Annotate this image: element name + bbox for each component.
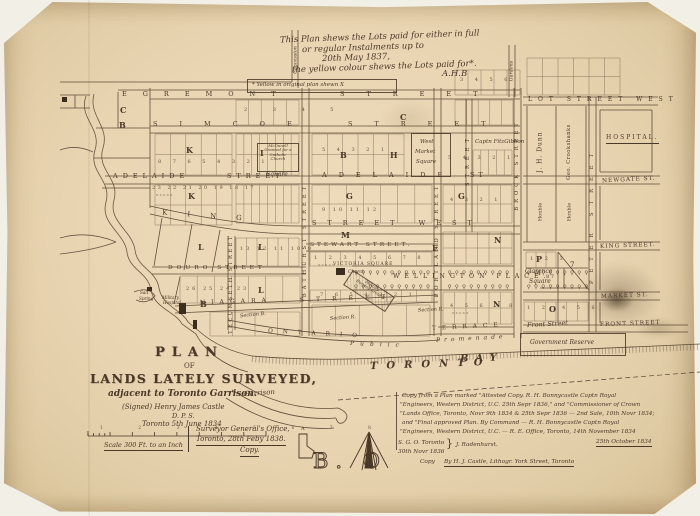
military-hospital-l2: Hospital (163, 301, 181, 306)
street-bathurst: BATHURST STREET (303, 183, 309, 297)
attestation-sgo1: S. G. O. Toronto (398, 440, 444, 446)
title-sub: adjacent to Toronto Garrison. (108, 390, 257, 400)
block-letter-c: C (120, 106, 126, 115)
street-egremont-street: STREET (340, 91, 500, 98)
block-letter-k: K (188, 192, 195, 201)
victoria-square-label: VICTORIA SQUARE (333, 263, 393, 268)
street-egremont: EGREMONT (122, 91, 292, 98)
street-simcoe-street: STREET (348, 121, 508, 128)
square-small-label: Square (266, 172, 288, 179)
sgo-divider (188, 426, 189, 452)
attestation-l3: "Lands Office, Toronto, Novr 9th 1834 & … (400, 411, 654, 417)
block-letter-i: I (260, 149, 264, 158)
scale-label: Scale 300 Ft. to an Inch (104, 442, 183, 451)
block-letter-m: M (341, 231, 350, 240)
block-letter-c: C (400, 113, 406, 122)
hospital-label: HOSPITAL. (606, 135, 659, 144)
street-douro: DOURO STREET (168, 265, 266, 271)
lot-numbers-row: 9 10 11 12 (322, 208, 379, 214)
lot-number-4: 4 (537, 271, 541, 278)
lot-numbers-8-7: 8 7 (546, 275, 554, 281)
lot-numbers-row: 3 4 5 6 (460, 78, 513, 84)
title-signed: (Signed) Henry James Castle (122, 404, 225, 412)
block-letter-f: F (432, 244, 438, 253)
victoria-square-church-building (336, 268, 345, 275)
street-king-center: STREET WEST (312, 220, 483, 227)
lot-x-marks: x x x x x (156, 193, 172, 197)
attestation-copy: Copy (420, 459, 435, 465)
block-letter-k: K (186, 146, 193, 155)
title-plan: PLAN (155, 346, 224, 360)
fitzgibbon-label: Captn FitzGibbon (475, 139, 524, 145)
attestation-sgo2: 30th Novr 1836 (398, 449, 445, 455)
lot-numbers-row: 8 7 6 5 4 3 2 1 (158, 160, 270, 166)
title-of: OF (184, 363, 195, 371)
owner-dunn: J. H. Dunn (538, 131, 545, 172)
block-letter-g: G (346, 192, 353, 201)
street-simcoe: SIMCOE (153, 121, 314, 128)
attestation-l5: "Engineers, Western District, U.C. — R. … (400, 429, 636, 435)
block-letter-b: B (200, 300, 207, 309)
attestation-divider (396, 392, 397, 450)
government-reserve-label: Government Reserve (530, 340, 594, 347)
top-note-footnote: * Yellow in original plan shewn X (252, 82, 344, 88)
lot-x-marks: x x x x x (318, 263, 334, 267)
attestation-brace: } (446, 438, 453, 450)
attestation-l2: "Engineers, Western District, U.C. 25th … (400, 402, 640, 408)
street-tecumseth: TECUMSETH STREET (229, 234, 235, 334)
lot-numbers-row: 5 4 3 2 1 (322, 148, 389, 154)
attestation-by: By H. J. Castle, Lithogr. York Street, T… (444, 459, 574, 467)
west-market-l1: West (420, 139, 434, 145)
street-portland: PORTLAND STREET (435, 183, 441, 298)
lot-numbers-row: 1 2 (527, 306, 550, 312)
survey-mark (299, 434, 314, 458)
lot-numbers-row: 23 22 21 20 19 18 17 (152, 186, 256, 192)
lot-numbers-row: 5 4 3 2 1 (448, 156, 515, 162)
street-brock: BROCK STREET (515, 119, 521, 210)
lot-numbers-row: 4 3 2 1 (450, 198, 503, 204)
owner-honble-1: Honble (538, 203, 544, 221)
salt-spring-l1: Salt (140, 291, 148, 296)
west-market-l2: Market (415, 149, 435, 155)
lot-numbers-row: 4 5 6 (562, 306, 600, 312)
lot-numbers-row: 4 5 6 7 8 (450, 304, 517, 310)
street-adelaide-west: ADELAIDE (113, 173, 189, 180)
street-lot-west: LOT STREET WEST (528, 97, 679, 104)
block-letter-l: L (258, 286, 264, 295)
lot-numbers-row: 1 2 3 4 5 6 7 8 (314, 256, 426, 262)
owner-crookshanks: Geo. Crookshanks (567, 124, 573, 180)
compass-letters-bo: B. O (313, 450, 387, 473)
owner-honble-2: Honble (567, 203, 573, 221)
attestation-l4: and "Final approved Plan. By Command — R… (402, 420, 619, 426)
west-market-l3: Square (416, 159, 436, 165)
salt-spring-l2: Spring (139, 297, 153, 302)
street-peter: PETER STREET (590, 146, 596, 284)
sgo-copy: Copy. (240, 447, 259, 457)
wharf-mark (193, 320, 197, 329)
block-letter-h: H (390, 151, 398, 160)
lot-numbers-row: 7 6 5 4 3 2 1 (320, 293, 417, 299)
lot-numbers-row: 13 12 11 10 9 (240, 247, 314, 253)
attestation-name: J. Radenhurst. (456, 442, 498, 448)
sgo-line2: Toronto, 28th Feby 1838. (196, 436, 286, 446)
block-letter-o: O (549, 305, 556, 314)
toronto-bay-bay: BAY (460, 352, 504, 365)
block-letter-b: B (119, 121, 126, 130)
street-adelaide-east-st: ST (470, 172, 487, 179)
scanned-map-plan-toronto-garrison: This Plan shews the Lots paid for either… (0, 0, 700, 516)
block-letter-n: N (494, 236, 501, 245)
block-letter-l: L (198, 243, 204, 252)
lot-numbers-row: 1 2 3 (530, 257, 568, 263)
concession-label: Concession (293, 46, 298, 74)
title-main: LANDS LATELY SURVEYED, (90, 372, 317, 386)
sgo-line1: Surveyor General's Office, (196, 426, 290, 434)
lot-x-marks: x x x x x (452, 311, 468, 315)
street-stewart: STEWART STREET. (310, 242, 412, 248)
attestation-date: 25th October 1834 (596, 439, 652, 447)
lot-numbers-row: 2 3 4 5 (244, 108, 346, 114)
lot-numbers-row: 26 25 24 23 (186, 287, 249, 293)
lot-number-7: 7 (570, 262, 574, 270)
attestation-l1: Copy from a Plan marked "Attested Copy. … (402, 393, 616, 399)
